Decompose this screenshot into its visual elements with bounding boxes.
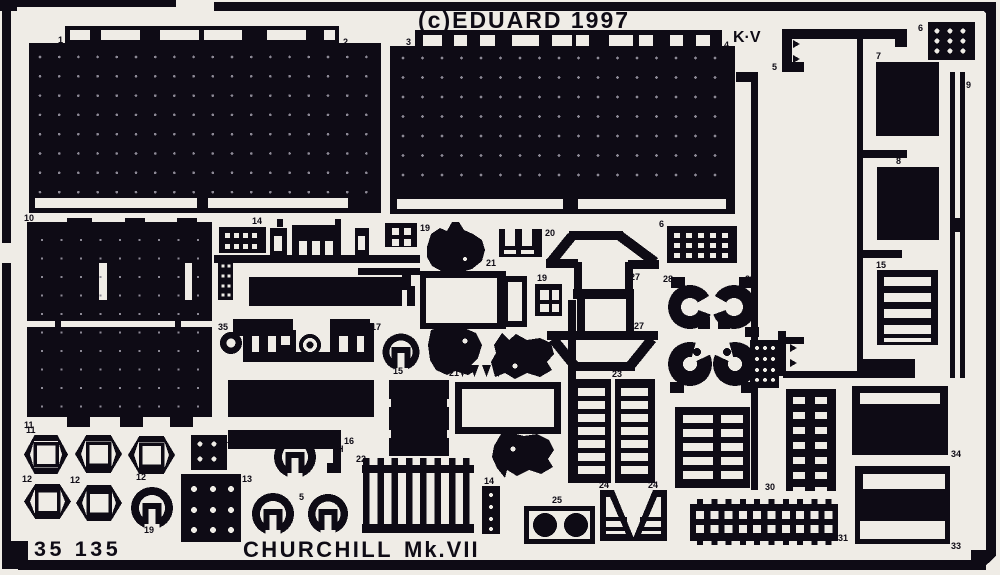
svg-text:7: 7 bbox=[876, 51, 881, 61]
svg-text:21: 21 bbox=[486, 258, 496, 268]
svg-text:13: 13 bbox=[242, 474, 252, 484]
svg-text:12: 12 bbox=[22, 474, 32, 484]
svg-text:35: 35 bbox=[218, 322, 228, 332]
svg-text:16: 16 bbox=[344, 436, 354, 446]
svg-text:24: 24 bbox=[648, 480, 658, 490]
svg-text:17: 17 bbox=[371, 322, 381, 332]
svg-text:30: 30 bbox=[765, 482, 775, 492]
svg-text:21: 21 bbox=[449, 368, 459, 378]
svg-text:19: 19 bbox=[537, 273, 547, 283]
svg-text:(c)EDUARD 1997: (c)EDUARD 1997 bbox=[418, 7, 630, 33]
svg-text:31: 31 bbox=[838, 533, 848, 543]
svg-text:2: 2 bbox=[343, 37, 348, 47]
svg-text:5: 5 bbox=[299, 492, 304, 502]
svg-text:12: 12 bbox=[70, 475, 80, 485]
svg-text:6: 6 bbox=[918, 23, 923, 33]
svg-text:5: 5 bbox=[772, 62, 777, 72]
svg-text:23: 23 bbox=[612, 369, 622, 379]
svg-text:1: 1 bbox=[58, 35, 63, 45]
svg-text:27: 27 bbox=[630, 272, 640, 282]
svg-text:33: 33 bbox=[951, 541, 961, 551]
svg-text:15: 15 bbox=[393, 366, 403, 376]
svg-text:14: 14 bbox=[484, 476, 494, 486]
svg-text:27: 27 bbox=[634, 321, 644, 331]
svg-text:14: 14 bbox=[252, 216, 262, 226]
svg-text:22: 22 bbox=[356, 454, 366, 464]
svg-text:19: 19 bbox=[144, 525, 154, 535]
svg-text:28: 28 bbox=[663, 274, 673, 284]
svg-text:3: 3 bbox=[406, 37, 411, 47]
svg-text:9: 9 bbox=[966, 80, 971, 90]
svg-text:15: 15 bbox=[876, 260, 886, 270]
svg-text:11: 11 bbox=[26, 425, 36, 435]
svg-text:H: H bbox=[337, 444, 344, 454]
svg-text:35 135: 35 135 bbox=[34, 537, 121, 561]
svg-text:10: 10 bbox=[24, 213, 34, 223]
svg-text:34: 34 bbox=[951, 449, 961, 459]
svg-text:25: 25 bbox=[552, 495, 562, 505]
svg-text:K·V: K·V bbox=[733, 29, 761, 46]
svg-text:6: 6 bbox=[659, 219, 664, 229]
svg-text:20: 20 bbox=[545, 228, 555, 238]
svg-text:Mk.VII: Mk.VII bbox=[404, 537, 480, 562]
svg-text:19: 19 bbox=[420, 223, 430, 233]
svg-text:4: 4 bbox=[724, 40, 729, 50]
svg-text:CHURCHILL: CHURCHILL bbox=[243, 537, 393, 562]
svg-text:12: 12 bbox=[136, 472, 146, 482]
svg-text:24: 24 bbox=[599, 480, 609, 490]
svg-text:8: 8 bbox=[896, 156, 901, 166]
